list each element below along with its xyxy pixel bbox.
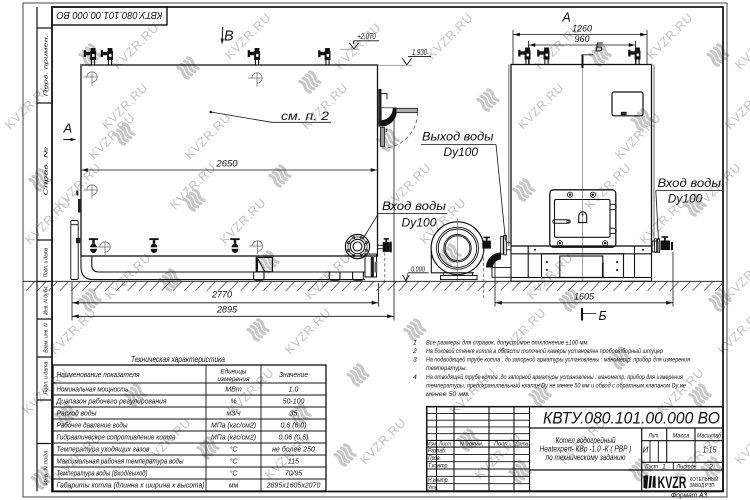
svg-text:Лист: Лист [644,463,658,470]
svg-text:115: 115 [288,458,299,465]
svg-text:Расход воды: Расход воды [57,409,98,417]
svg-text:Справ. №: Справ. № [44,146,50,195]
svg-text:температуры, предохранительный: температуры, предохранительный клапан Dy… [426,381,686,389]
svg-text:Б: Б [595,41,603,55]
svg-text:Dy100: Dy100 [668,193,703,205]
svg-text:Разраб.: Разраб. [428,449,446,455]
svg-text:Максимальная рабочая температу: Максимальная рабочая температура воды [57,457,185,465]
svg-text:КОТЕЛЬНЫЙ: КОТЕЛЬНЫЙ [690,475,719,483]
svg-text:Вход воды: Вход воды [382,201,447,213]
svg-text:2895х1605х2070: 2895х1605х2070 [266,482,321,489]
svg-text:КВТУ.080.101.00.000 ВО: КВТУ.080.101.00.000 ВО [57,9,163,21]
svg-text:Наименование показателя: Наименование показателя [57,372,140,379]
svg-text:Инв. N подл.: Инв. N подл. [44,449,50,485]
svg-text:1260: 1260 [572,24,592,34]
svg-text:Вход воды: Вход воды [658,178,722,190]
svg-text:В: В [224,29,234,45]
svg-text:А: А [561,11,570,25]
svg-text:Н.контр.: Н.контр. [428,478,449,484]
svg-text:Диапазон рабочего регулировани: Диапазон рабочего регулирования [56,397,167,405]
svg-text:Лист: Лист [438,441,451,447]
svg-text:Дата: Дата [514,441,528,447]
svg-text:70/95: 70/95 [285,470,303,477]
svg-text:Гидравлическое сопротивление к: Гидравлическое сопротивление котла [57,433,176,441]
svg-text:4: 4 [413,374,417,381]
svg-text:МПа (кгс/см2): МПа (кгс/см2) [211,434,256,441]
svg-text:измерения: измерения [218,376,250,383]
svg-text:°С: °С [230,457,239,465]
svg-text:Б: Б [599,309,607,323]
svg-text:2770: 2770 [211,290,232,300]
svg-text:KVZR: KVZR [658,473,687,492]
svg-text:0,06 (0,6): 0,06 (0,6) [279,434,309,441]
svg-text:Dy100: Dy100 [402,218,438,230]
svg-text:1,930: 1,930 [412,48,427,57]
svg-text:по техническому заданию: по техническому заданию [546,453,626,462]
svg-text:температуры.: температуры. [426,365,467,372]
svg-text:%: % [230,398,236,405]
svg-text:На подводящей трубе котла ,: На подводящей трубе котла , до запорной … [426,356,690,364]
svg-text:не более 250: не более 250 [272,445,315,453]
svg-text:Пров.: Пров. [428,456,441,462]
svg-text:На боковой стенке котла в обла: На боковой стенке котла в области топочн… [426,347,663,355]
svg-text:+2,070: +2,070 [357,32,376,41]
svg-text:2: 2 [412,348,417,355]
svg-text:Формат А3: Формат А3 [671,493,707,500]
svg-text:Листов: Листов [676,463,698,470]
svg-text:2: 2 [708,463,713,470]
svg-text:Единицы: Единицы [221,368,247,376]
svg-text:2895: 2895 [216,304,238,314]
svg-text:Т.контр.: Т.контр. [428,463,449,469]
svg-text:Подп.: Подп. [494,441,509,447]
svg-text:менее 50 мм.: менее 50 мм. [426,391,470,398]
svg-text:м3/ч: м3/ч [226,410,241,417]
svg-text:МВт: МВт [225,386,242,393]
svg-text:Техническая характеристика: Техническая характеристика [131,355,225,364]
svg-text:2650: 2650 [215,159,238,170]
svg-text:Масштаб: Масштаб [697,434,722,440]
svg-text:ЗАВОД РЭП: ЗАВОД РЭП [690,483,715,489]
svg-text:35: 35 [290,410,298,417]
svg-text:см. п. 2: см. п. 2 [281,111,330,123]
svg-text:3: 3 [413,357,417,364]
svg-text:Рабочее давление воды: Рабочее давление воды [57,421,129,429]
svg-text:960: 960 [574,34,589,44]
svg-text:Температура уходящих газов: Температура уходящих газов [57,445,150,453]
svg-text:1605: 1605 [574,291,595,301]
svg-text:0.000: 0.000 [411,266,425,273]
svg-text:Инв. N дубл.: Инв. N дубл. [44,285,50,315]
svg-text:И: И [643,446,649,455]
svg-text:1:15: 1:15 [703,445,717,455]
svg-text:Подп. и дата: Подп. и дата [44,248,50,278]
svg-text:Утв.: Утв. [427,485,438,491]
svg-text:Взам. инв. N: Взам. инв. N [44,323,50,353]
svg-text:°С: °С [230,469,239,477]
svg-text:МПа (кгс/см2): МПа (кгс/см2) [211,422,256,429]
svg-text:50-100: 50-100 [283,398,305,405]
svg-text:Изм: Изм [427,441,436,447]
svg-text:Перв. примен.: Перв. примен. [44,35,50,97]
svg-text:Подп. и дата: Подп. и дата [44,362,50,395]
svg-text:0,6 (6,0): 0,6 (6,0) [280,422,306,429]
svg-text:Температура воды (Вход/выход): Температура воды (Вход/выход) [57,469,148,477]
svg-text:Лит.: Лит. [648,434,660,440]
svg-text:А: А [63,121,73,136]
svg-text:1,0: 1,0 [289,386,299,393]
svg-text:Габариты котла (длинна х ширин: Габариты котла (длинна х ширина х высота… [57,481,205,489]
svg-text:Все размеры для справок, допус: Все размеры для справок, допустимое откл… [426,338,589,346]
svg-text:КВТУ.080.101.00.000 ВО: КВТУ.080.101.00.000 ВО [543,409,720,427]
svg-text:1: 1 [662,463,665,470]
svg-text:1: 1 [413,339,417,346]
svg-text:Масса: Масса [673,434,691,440]
svg-text:На отводящей трубе котла ,до з: На отводящей трубе котла ,до запорной ар… [426,373,683,381]
svg-text:Выход воды: Выход воды [422,132,494,144]
svg-text:мм: мм [229,482,239,489]
svg-text:Dy100: Dy100 [444,147,479,159]
svg-text:N докум.: N докум. [460,441,484,447]
svg-text:Значение: Значение [279,372,308,379]
svg-text:Номинальная мощность: Номинальная мощность [57,386,129,393]
svg-text:°С: °С [230,445,239,453]
